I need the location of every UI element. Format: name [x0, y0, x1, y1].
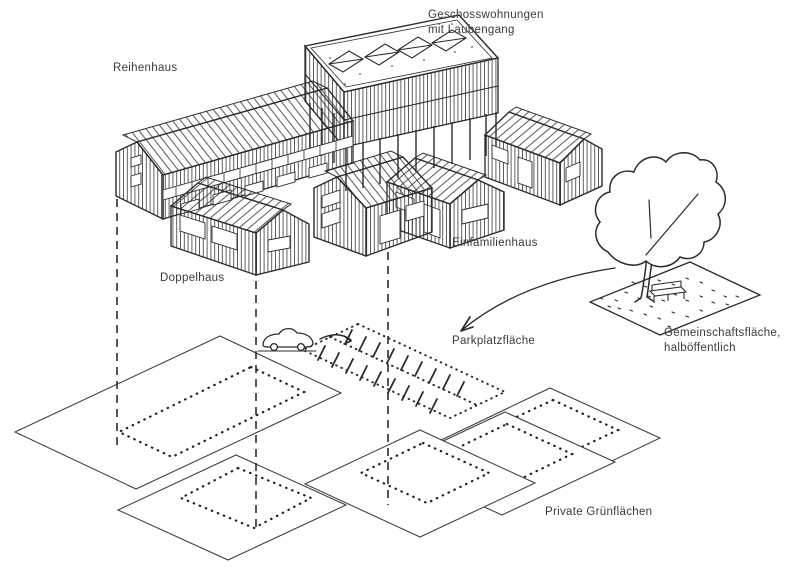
label-gemeinschaftsflaeche: Gemeinschaftsfläche,halböffentlich: [664, 326, 781, 356]
door: [518, 157, 532, 188]
community-plot: [590, 262, 760, 335]
label-reihenhaus: Reihenhaus: [113, 61, 177, 76]
label-line: Geschosswohnungen: [428, 9, 544, 21]
doppelhaus-building: [171, 177, 309, 275]
label-line: Gemeinschaftsfläche,: [664, 327, 781, 339]
sketch-page: Geschosswohnungenmit Laubengang Reihenha…: [0, 0, 800, 584]
label-line: halböffentlich: [664, 342, 736, 354]
label-parkplatzflaeche: Parkplatzfläche: [452, 334, 535, 349]
label-line: mit Laubengang: [428, 24, 515, 36]
gable-window: [131, 173, 141, 187]
tree-canopy: [595, 153, 725, 267]
arrow-to-parking: [461, 268, 615, 331]
sketch-canvas: [0, 0, 800, 584]
small-house-right: [485, 107, 602, 205]
car-sketch: [258, 329, 316, 351]
label-private-gruenflaechen: Private Grünflächen: [545, 505, 652, 520]
label-geschosswohnungen: Geschosswohnungenmit Laubengang: [428, 8, 544, 38]
ground-plot-left-large: [15, 336, 341, 489]
label-doppelhaus: Doppelhaus: [160, 271, 224, 286]
ground-plots: [15, 336, 660, 560]
door: [380, 210, 400, 244]
label-einfamilienhaus: Einfamilienhaus: [452, 236, 538, 251]
